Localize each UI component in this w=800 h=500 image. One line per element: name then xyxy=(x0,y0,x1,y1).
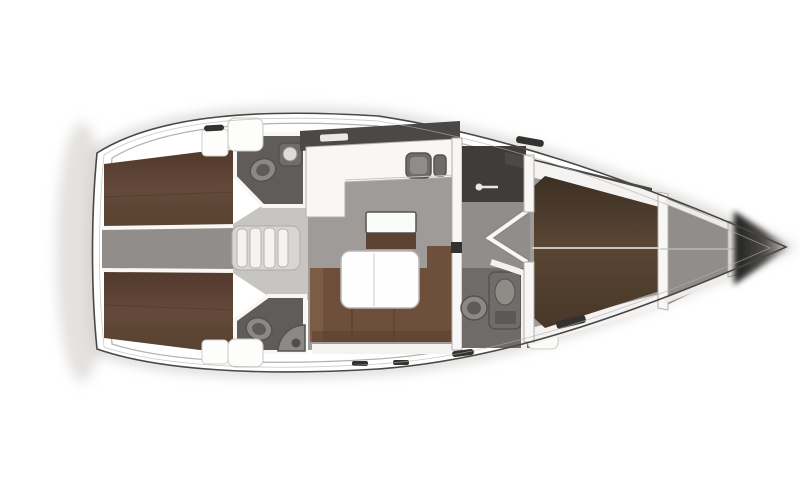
bow-tip-shadow xyxy=(734,211,789,285)
port-double-berth xyxy=(104,150,233,230)
passage-wall-top xyxy=(102,226,236,228)
locker-latch xyxy=(451,242,463,253)
salon-table xyxy=(341,251,419,308)
passage-wall-bottom xyxy=(102,270,236,271)
shower-compartment xyxy=(462,146,526,202)
aft-cabin-port xyxy=(104,150,233,230)
sofa-arm-left xyxy=(310,268,323,342)
yacht-deck-plan xyxy=(0,0,800,500)
engine-passage xyxy=(102,226,236,271)
bulkhead-lower xyxy=(524,262,534,342)
bulkhead-upper xyxy=(524,155,534,212)
sink-basin xyxy=(283,147,297,161)
sofa-front-shadow xyxy=(312,331,457,342)
deck-hatch xyxy=(228,118,263,151)
step-tread xyxy=(250,228,261,268)
deck-hatch xyxy=(228,339,263,367)
companionway-steps xyxy=(232,226,300,270)
column-basin xyxy=(495,279,515,305)
column-vent xyxy=(495,311,516,324)
sink-left-basin xyxy=(410,157,427,174)
toilet-seat xyxy=(467,302,481,315)
passage-floor xyxy=(102,228,234,270)
sink-right xyxy=(434,155,446,176)
wardrobe-top xyxy=(202,129,228,156)
step-tread xyxy=(264,228,275,268)
wardrobe-bottom xyxy=(202,340,228,364)
step-tread xyxy=(237,229,247,267)
sideboard-top xyxy=(366,212,416,233)
window-slat xyxy=(320,133,348,141)
door-knob xyxy=(476,184,483,191)
sofa-base-shelf xyxy=(312,344,458,354)
sideboard-front xyxy=(366,233,416,249)
sink-drain xyxy=(292,339,301,348)
step-tread xyxy=(278,229,288,267)
deck-window-slot xyxy=(204,124,224,131)
